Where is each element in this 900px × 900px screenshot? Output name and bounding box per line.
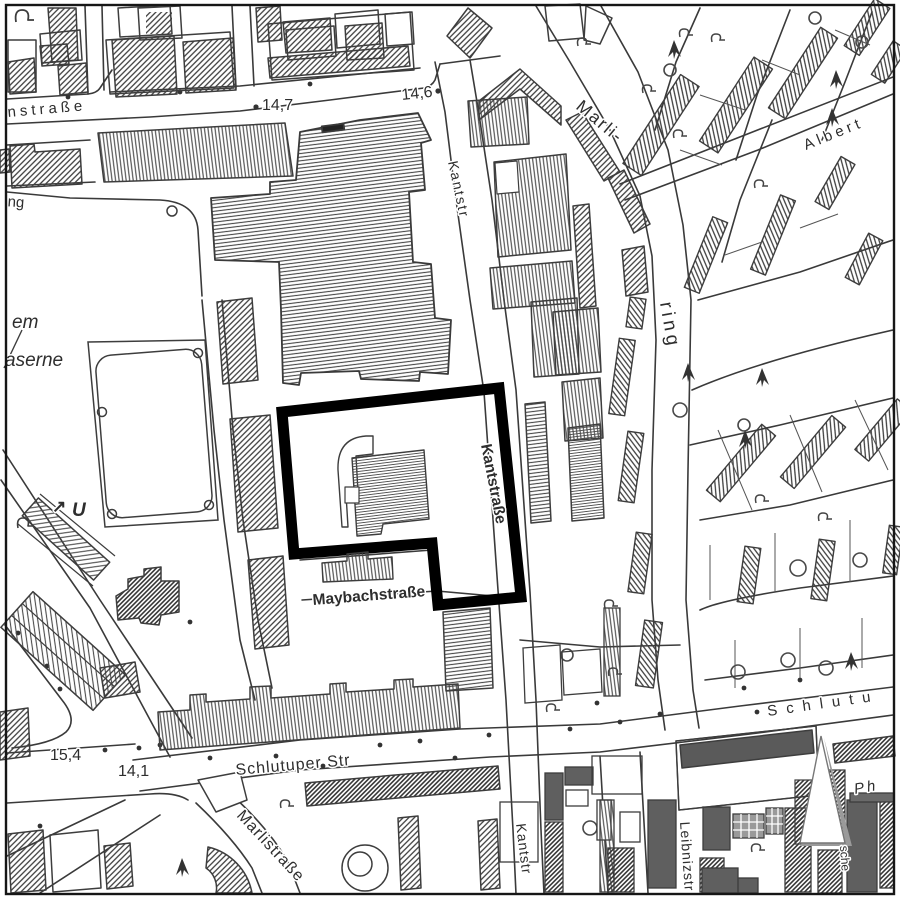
svg-text:aserne: aserne [5, 350, 63, 371]
svg-text:15,4: 15,4 [50, 747, 81, 764]
svg-text:↗: ↗ [52, 497, 66, 516]
svg-text:14,6: 14,6 [401, 84, 434, 104]
svg-text:em: em [12, 312, 38, 333]
svg-text:14,1: 14,1 [118, 763, 149, 780]
svg-text:U: U [72, 500, 87, 521]
svg-text:sche: sche [837, 845, 853, 872]
svg-text:14,7: 14,7 [262, 97, 293, 114]
